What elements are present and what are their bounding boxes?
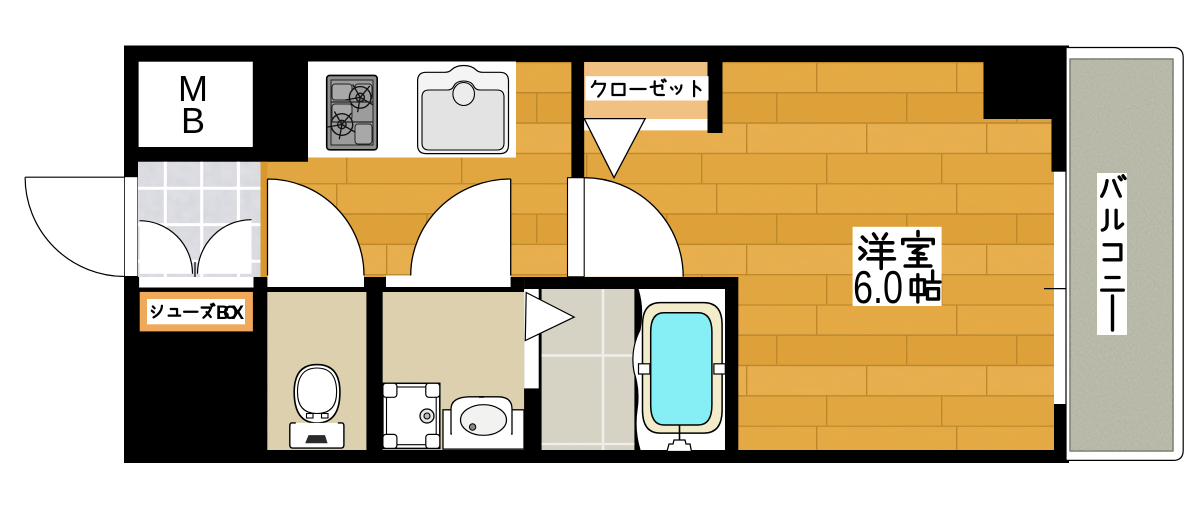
svg-text:B: B <box>181 100 205 141</box>
svg-text:6.0: 6.0 <box>853 261 903 313</box>
svg-text:BOX: BOX <box>216 303 244 324</box>
